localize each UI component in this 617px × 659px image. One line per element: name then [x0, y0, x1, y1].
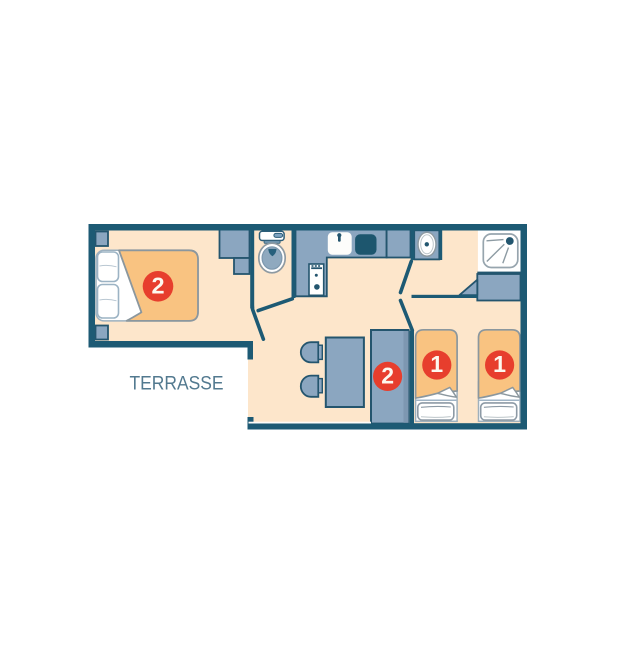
- svg-text:2: 2: [151, 272, 164, 298]
- svg-text:TERRASSE: TERRASSE: [130, 374, 224, 395]
- svg-text:1: 1: [493, 351, 506, 377]
- svg-text:2: 2: [381, 362, 394, 388]
- svg-text:1: 1: [430, 351, 443, 377]
